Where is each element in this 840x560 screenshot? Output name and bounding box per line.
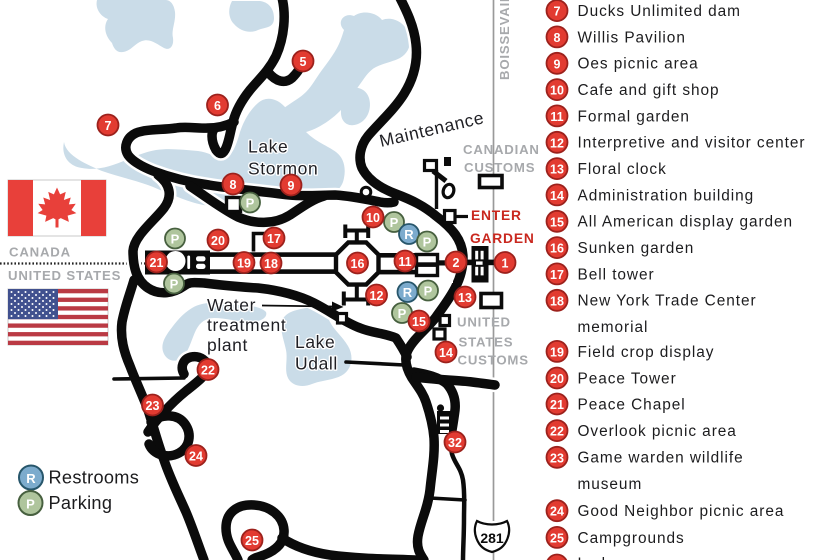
- svg-text:21: 21: [550, 398, 564, 412]
- svg-text:15: 15: [550, 215, 564, 229]
- svg-text:P: P: [424, 284, 433, 299]
- svg-text:2: 2: [453, 256, 460, 270]
- svg-text:Administration building: Administration building: [578, 187, 755, 204]
- svg-text:7: 7: [554, 5, 561, 19]
- svg-text:CUSTOMS: CUSTOMS: [458, 353, 529, 368]
- svg-text:10: 10: [550, 84, 564, 98]
- svg-text:P: P: [398, 306, 407, 321]
- svg-text:13: 13: [458, 291, 472, 305]
- svg-text:Peace Chapel: Peace Chapel: [578, 396, 686, 413]
- svg-text:14: 14: [550, 189, 564, 203]
- svg-text:20: 20: [211, 234, 225, 248]
- svg-text:14: 14: [439, 346, 453, 360]
- svg-text:memorial: memorial: [578, 319, 649, 336]
- svg-text:18: 18: [550, 294, 564, 308]
- svg-text:25: 25: [550, 531, 564, 545]
- svg-text:museum: museum: [578, 476, 643, 493]
- svg-text:Lake: Lake: [248, 137, 288, 157]
- svg-text:12: 12: [550, 136, 564, 150]
- svg-text:P: P: [423, 235, 432, 250]
- svg-text:P: P: [26, 497, 35, 512]
- svg-text:15: 15: [412, 315, 426, 329]
- svg-text:17: 17: [550, 268, 564, 282]
- svg-text:Sunken garden: Sunken garden: [578, 240, 695, 257]
- svg-text:32: 32: [448, 436, 462, 450]
- svg-text:Cafe and gift shop: Cafe and gift shop: [578, 82, 720, 99]
- svg-text:Game warden wildlife: Game warden wildlife: [578, 450, 744, 467]
- svg-text:Overlook picnic area: Overlook picnic area: [578, 423, 737, 440]
- svg-text:22: 22: [550, 425, 564, 439]
- svg-text:12: 12: [370, 289, 384, 303]
- svg-text:18: 18: [264, 257, 278, 271]
- svg-text:CANADIAN: CANADIAN: [463, 142, 540, 157]
- svg-text:1: 1: [502, 257, 509, 271]
- svg-text:9: 9: [554, 57, 561, 71]
- svg-text:plant: plant: [207, 335, 248, 355]
- svg-text:R: R: [26, 471, 36, 486]
- svg-text:Bell tower: Bell tower: [578, 266, 655, 283]
- svg-text:22: 22: [201, 364, 215, 378]
- svg-text:All American display garden: All American display garden: [578, 214, 794, 231]
- svg-text:25: 25: [245, 534, 259, 548]
- svg-text:P: P: [171, 232, 180, 247]
- svg-text:Oes picnic area: Oes picnic area: [578, 56, 699, 73]
- svg-text:17: 17: [267, 232, 281, 246]
- svg-text:23: 23: [550, 451, 564, 465]
- svg-text:ENTER: ENTER: [471, 208, 522, 223]
- svg-text:Good Neighbor picnic area: Good Neighbor picnic area: [578, 503, 785, 520]
- svg-text:New York Trade Center: New York Trade Center: [578, 293, 757, 310]
- svg-text:Udall: Udall: [295, 354, 338, 374]
- svg-text:Peace Tower: Peace Tower: [578, 370, 677, 387]
- svg-text:BOISSEVAIN: BOISSEVAIN: [497, 0, 512, 80]
- svg-text:treatment: treatment: [207, 315, 286, 335]
- svg-text:P: P: [246, 196, 255, 211]
- svg-text:Water: Water: [207, 295, 256, 315]
- svg-text:8: 8: [554, 31, 561, 45]
- svg-text:16: 16: [351, 257, 365, 271]
- svg-text:STATES: STATES: [459, 335, 514, 350]
- svg-text:Floral clock: Floral clock: [578, 161, 667, 178]
- svg-text:P: P: [390, 215, 399, 230]
- svg-text:6: 6: [214, 99, 221, 113]
- svg-text:Parking: Parking: [49, 493, 113, 513]
- svg-text:Ducks Unlimited dam: Ducks Unlimited dam: [578, 3, 741, 20]
- svg-text:R: R: [404, 227, 414, 242]
- svg-text:Restrooms: Restrooms: [49, 468, 140, 488]
- svg-text:20: 20: [550, 372, 564, 386]
- svg-text:10: 10: [366, 211, 380, 225]
- svg-text:UNITED STATES: UNITED STATES: [8, 268, 121, 283]
- svg-text:Formal garden: Formal garden: [578, 108, 690, 125]
- svg-text:19: 19: [237, 257, 251, 271]
- svg-text:24: 24: [189, 450, 203, 464]
- svg-text:19: 19: [550, 345, 564, 359]
- svg-text:CUSTOMS: CUSTOMS: [464, 160, 535, 175]
- svg-text:Lodge: Lodge: [578, 556, 626, 560]
- svg-text:21: 21: [150, 256, 164, 270]
- svg-text:9: 9: [288, 179, 295, 193]
- svg-text:24: 24: [550, 505, 564, 519]
- svg-text:23: 23: [146, 399, 160, 413]
- svg-text:Campgrounds: Campgrounds: [578, 530, 685, 547]
- svg-text:Stormon: Stormon: [248, 159, 318, 179]
- svg-text:Willis Pavilion: Willis Pavilion: [578, 29, 686, 46]
- svg-text:R: R: [403, 285, 413, 300]
- svg-text:7: 7: [105, 119, 112, 133]
- svg-text:UNITED: UNITED: [457, 315, 511, 330]
- svg-text:8: 8: [230, 178, 237, 192]
- svg-text:Lake: Lake: [295, 332, 335, 352]
- svg-text:16: 16: [550, 242, 564, 256]
- svg-text:Field crop display: Field crop display: [578, 344, 715, 361]
- svg-text:GARDEN: GARDEN: [470, 231, 535, 246]
- svg-text:11: 11: [550, 110, 563, 124]
- svg-text:P: P: [170, 277, 179, 292]
- svg-text:13: 13: [550, 163, 564, 177]
- svg-text:CANADA: CANADA: [9, 245, 71, 260]
- svg-text:281: 281: [480, 530, 504, 546]
- svg-text:11: 11: [398, 255, 411, 269]
- svg-text:5: 5: [300, 55, 307, 69]
- svg-text:Interpretive and visitor cente: Interpretive and visitor center: [578, 135, 806, 152]
